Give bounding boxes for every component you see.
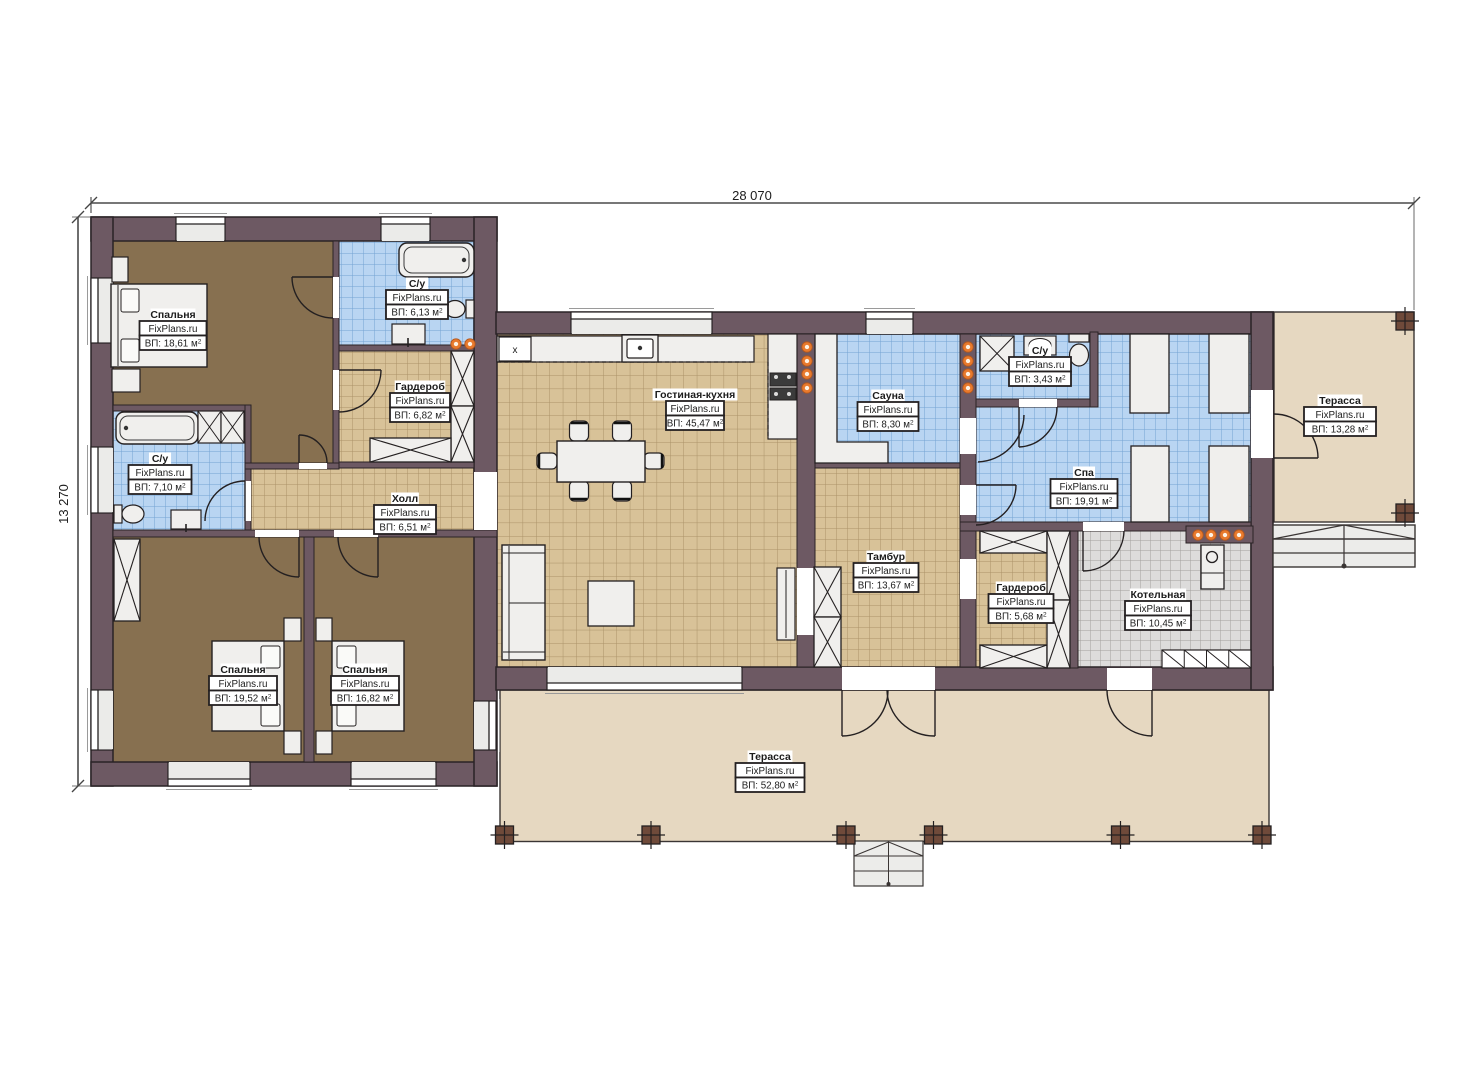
svg-text:Терасса: Терасса bbox=[1319, 395, 1361, 407]
svg-text:Спальня: Спальня bbox=[220, 664, 265, 676]
svg-text:ВП: 45,47 м2: ВП: 45,47 м2 bbox=[667, 419, 724, 430]
svg-text:FixPlans.ru: FixPlans.ru bbox=[149, 324, 198, 335]
svg-text:Спальня: Спальня bbox=[342, 664, 387, 676]
svg-text:ВП: 19,91 м2: ВП: 19,91 м2 bbox=[1056, 497, 1113, 508]
svg-text:28 070: 28 070 bbox=[732, 188, 772, 203]
svg-text:ВП: 5,68 м2: ВП: 5,68 м2 bbox=[995, 612, 1047, 623]
svg-text:ВП: 6,51 м2: ВП: 6,51 м2 bbox=[379, 523, 431, 534]
svg-text:Спальня: Спальня bbox=[150, 309, 195, 321]
svg-text:С/у: С/у bbox=[152, 453, 169, 465]
svg-text:FixPlans.ru: FixPlans.ru bbox=[862, 566, 911, 577]
svg-text:FixPlans.ru: FixPlans.ru bbox=[1134, 604, 1183, 615]
svg-text:Гардероб: Гардероб bbox=[395, 381, 445, 393]
svg-text:FixPlans.ru: FixPlans.ru bbox=[341, 679, 390, 690]
svg-text:С/у: С/у bbox=[1032, 345, 1049, 357]
svg-text:FixPlans.ru: FixPlans.ru bbox=[396, 396, 445, 407]
svg-text:FixPlans.ru: FixPlans.ru bbox=[746, 766, 795, 777]
svg-text:ВП: 13,28 м2: ВП: 13,28 м2 bbox=[1312, 425, 1369, 436]
svg-text:ВП: 3,43 м2: ВП: 3,43 м2 bbox=[1014, 375, 1066, 386]
svg-text:ВП: 52,80 м2: ВП: 52,80 м2 bbox=[742, 781, 799, 792]
svg-text:FixPlans.ru: FixPlans.ru bbox=[136, 468, 185, 479]
svg-text:ВП: 16,82 м2: ВП: 16,82 м2 bbox=[337, 694, 394, 705]
svg-text:ВП: 6,13 м2: ВП: 6,13 м2 bbox=[391, 308, 443, 319]
svg-text:FixPlans.ru: FixPlans.ru bbox=[997, 597, 1046, 608]
svg-text:FixPlans.ru: FixPlans.ru bbox=[1060, 482, 1109, 493]
svg-text:Гардероб: Гардероб bbox=[996, 582, 1046, 594]
svg-text:ВП: 8,30 м2: ВП: 8,30 м2 bbox=[862, 420, 914, 431]
svg-text:FixPlans.ru: FixPlans.ru bbox=[1016, 360, 1065, 371]
svg-text:ВП: 7,10 м2: ВП: 7,10 м2 bbox=[134, 483, 186, 494]
svg-text:ВП: 10,45 м2: ВП: 10,45 м2 bbox=[1130, 619, 1187, 630]
svg-text:Терасса: Терасса bbox=[749, 751, 791, 763]
svg-text:Тамбур: Тамбур bbox=[867, 551, 905, 563]
svg-text:ВП: 13,67 м2: ВП: 13,67 м2 bbox=[858, 581, 915, 592]
svg-text:13 270: 13 270 bbox=[56, 484, 71, 524]
svg-text:ВП: 18,61 м2: ВП: 18,61 м2 bbox=[145, 339, 202, 350]
svg-text:Гостиная-кухня: Гостиная-кухня bbox=[655, 389, 735, 401]
svg-text:FixPlans.ru: FixPlans.ru bbox=[381, 508, 430, 519]
svg-text:FixPlans.ru: FixPlans.ru bbox=[219, 679, 268, 690]
svg-text:Холл: Холл bbox=[392, 493, 418, 505]
svg-text:FixPlans.ru: FixPlans.ru bbox=[671, 404, 720, 415]
svg-text:x: x bbox=[513, 345, 518, 356]
svg-text:FixPlans.ru: FixPlans.ru bbox=[1316, 410, 1365, 421]
svg-text:ВП: 19,52 м2: ВП: 19,52 м2 bbox=[215, 694, 272, 705]
svg-text:Котельная: Котельная bbox=[1131, 589, 1186, 601]
svg-text:FixPlans.ru: FixPlans.ru bbox=[864, 405, 913, 416]
svg-text:ВП: 6,82 м2: ВП: 6,82 м2 bbox=[394, 411, 446, 422]
svg-text:С/у: С/у bbox=[409, 278, 426, 290]
svg-text:Сауна: Сауна bbox=[872, 390, 904, 402]
svg-text:FixPlans.ru: FixPlans.ru bbox=[393, 293, 442, 304]
svg-text:Спа: Спа bbox=[1074, 467, 1094, 479]
